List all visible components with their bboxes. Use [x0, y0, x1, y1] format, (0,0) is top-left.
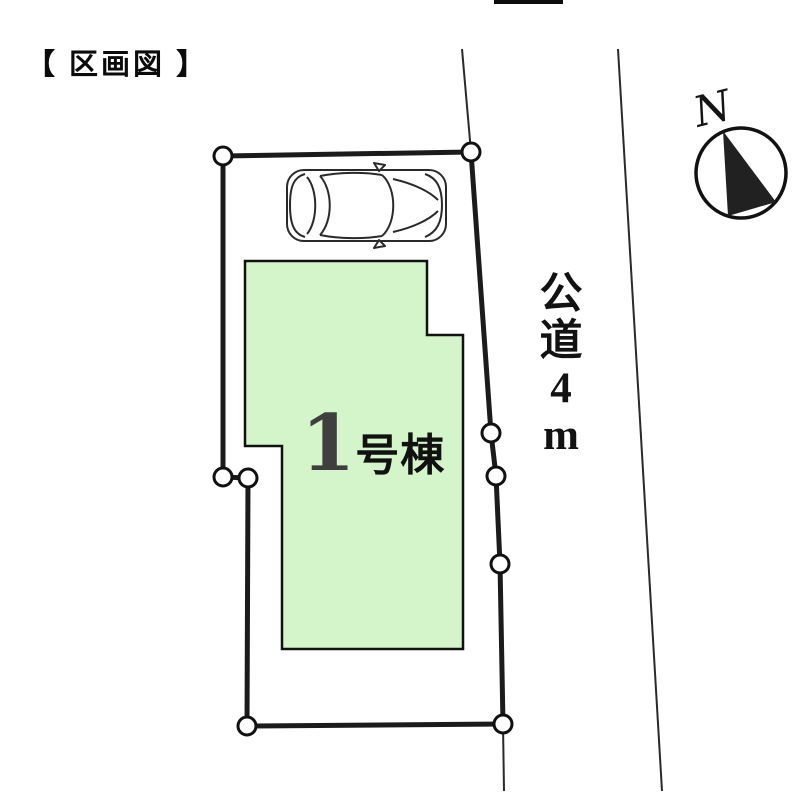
car-icon	[287, 163, 446, 248]
page-title: 【 区画図 】	[26, 41, 208, 83]
north-compass-icon	[696, 128, 786, 218]
boundary-marker-icon	[214, 468, 232, 486]
road-label-char: m	[543, 412, 579, 459]
site-plan-canvas: 【 区画図 】 公 道 4 m 1号棟 N	[0, 0, 800, 802]
road-label-char: 4	[550, 365, 572, 412]
boundary-marker-icon	[214, 147, 232, 165]
road-near-edge-upper	[462, 49, 471, 152]
boundary-marker-icon	[494, 715, 512, 733]
building-label: 1号棟	[301, 398, 445, 489]
boundary-top	[223, 152, 471, 156]
boundary-marker-icon	[487, 467, 505, 485]
boundary-marker-icon	[238, 717, 256, 735]
building-suffix: 号棟	[355, 431, 445, 480]
road-label-char: 道	[540, 318, 583, 365]
boundary-marker-icon	[491, 555, 509, 573]
boundary-bottom	[247, 724, 503, 726]
road-label-char: 公	[540, 271, 583, 318]
road-label: 公 道 4 m	[534, 271, 588, 459]
cropped-header-remnant	[494, 0, 563, 4]
boundary-marker-icon	[239, 469, 257, 487]
building-number: 1	[301, 398, 355, 489]
road-far-edge	[618, 49, 662, 791]
boundary-marker-icon	[482, 424, 500, 442]
boundary-marker-icon	[462, 143, 480, 161]
